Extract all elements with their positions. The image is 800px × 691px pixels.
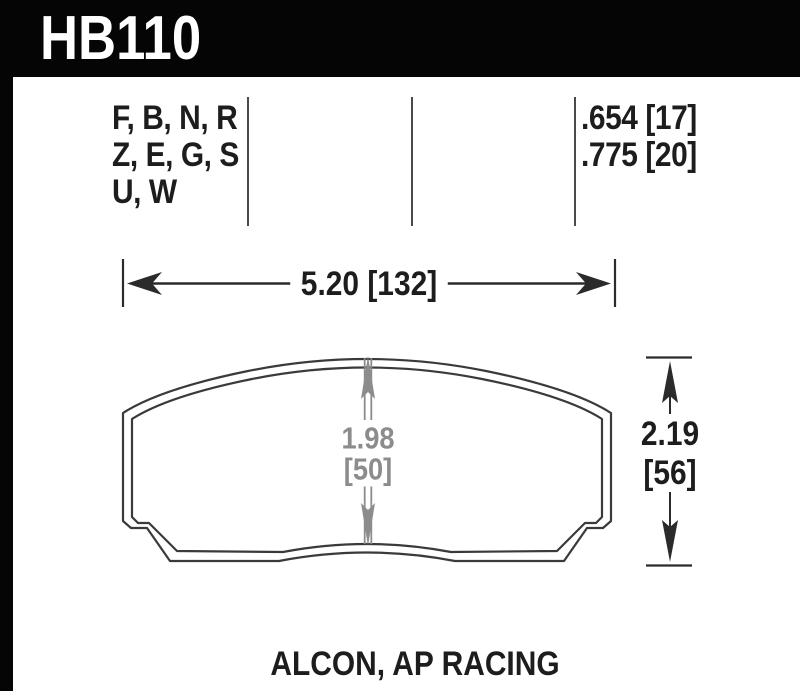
technical-drawing [0, 0, 800, 691]
pad-height-dim-arrowhead-up [361, 356, 375, 399]
pad-height-dim-arrowhead-down [361, 503, 375, 546]
overall-height-value-label: 2.19 [636, 415, 705, 453]
diagram-page: HB110 F, B, N, R Z, E, G, S U, W .654 [1… [0, 0, 800, 691]
pad-height-mm-label: [50] [337, 452, 400, 487]
applications-label: ALCON, AP RACING [270, 647, 559, 681]
header-bar: HB110 [0, 0, 800, 77]
pad-height-value-label: 1.98 [334, 421, 401, 456]
page-left-border-bar [0, 0, 13, 691]
part-number: HB110 [40, 8, 201, 70]
width-dimension-label: 5.20 [132] [290, 264, 448, 304]
overall-height-mm-label: [56] [638, 454, 702, 492]
